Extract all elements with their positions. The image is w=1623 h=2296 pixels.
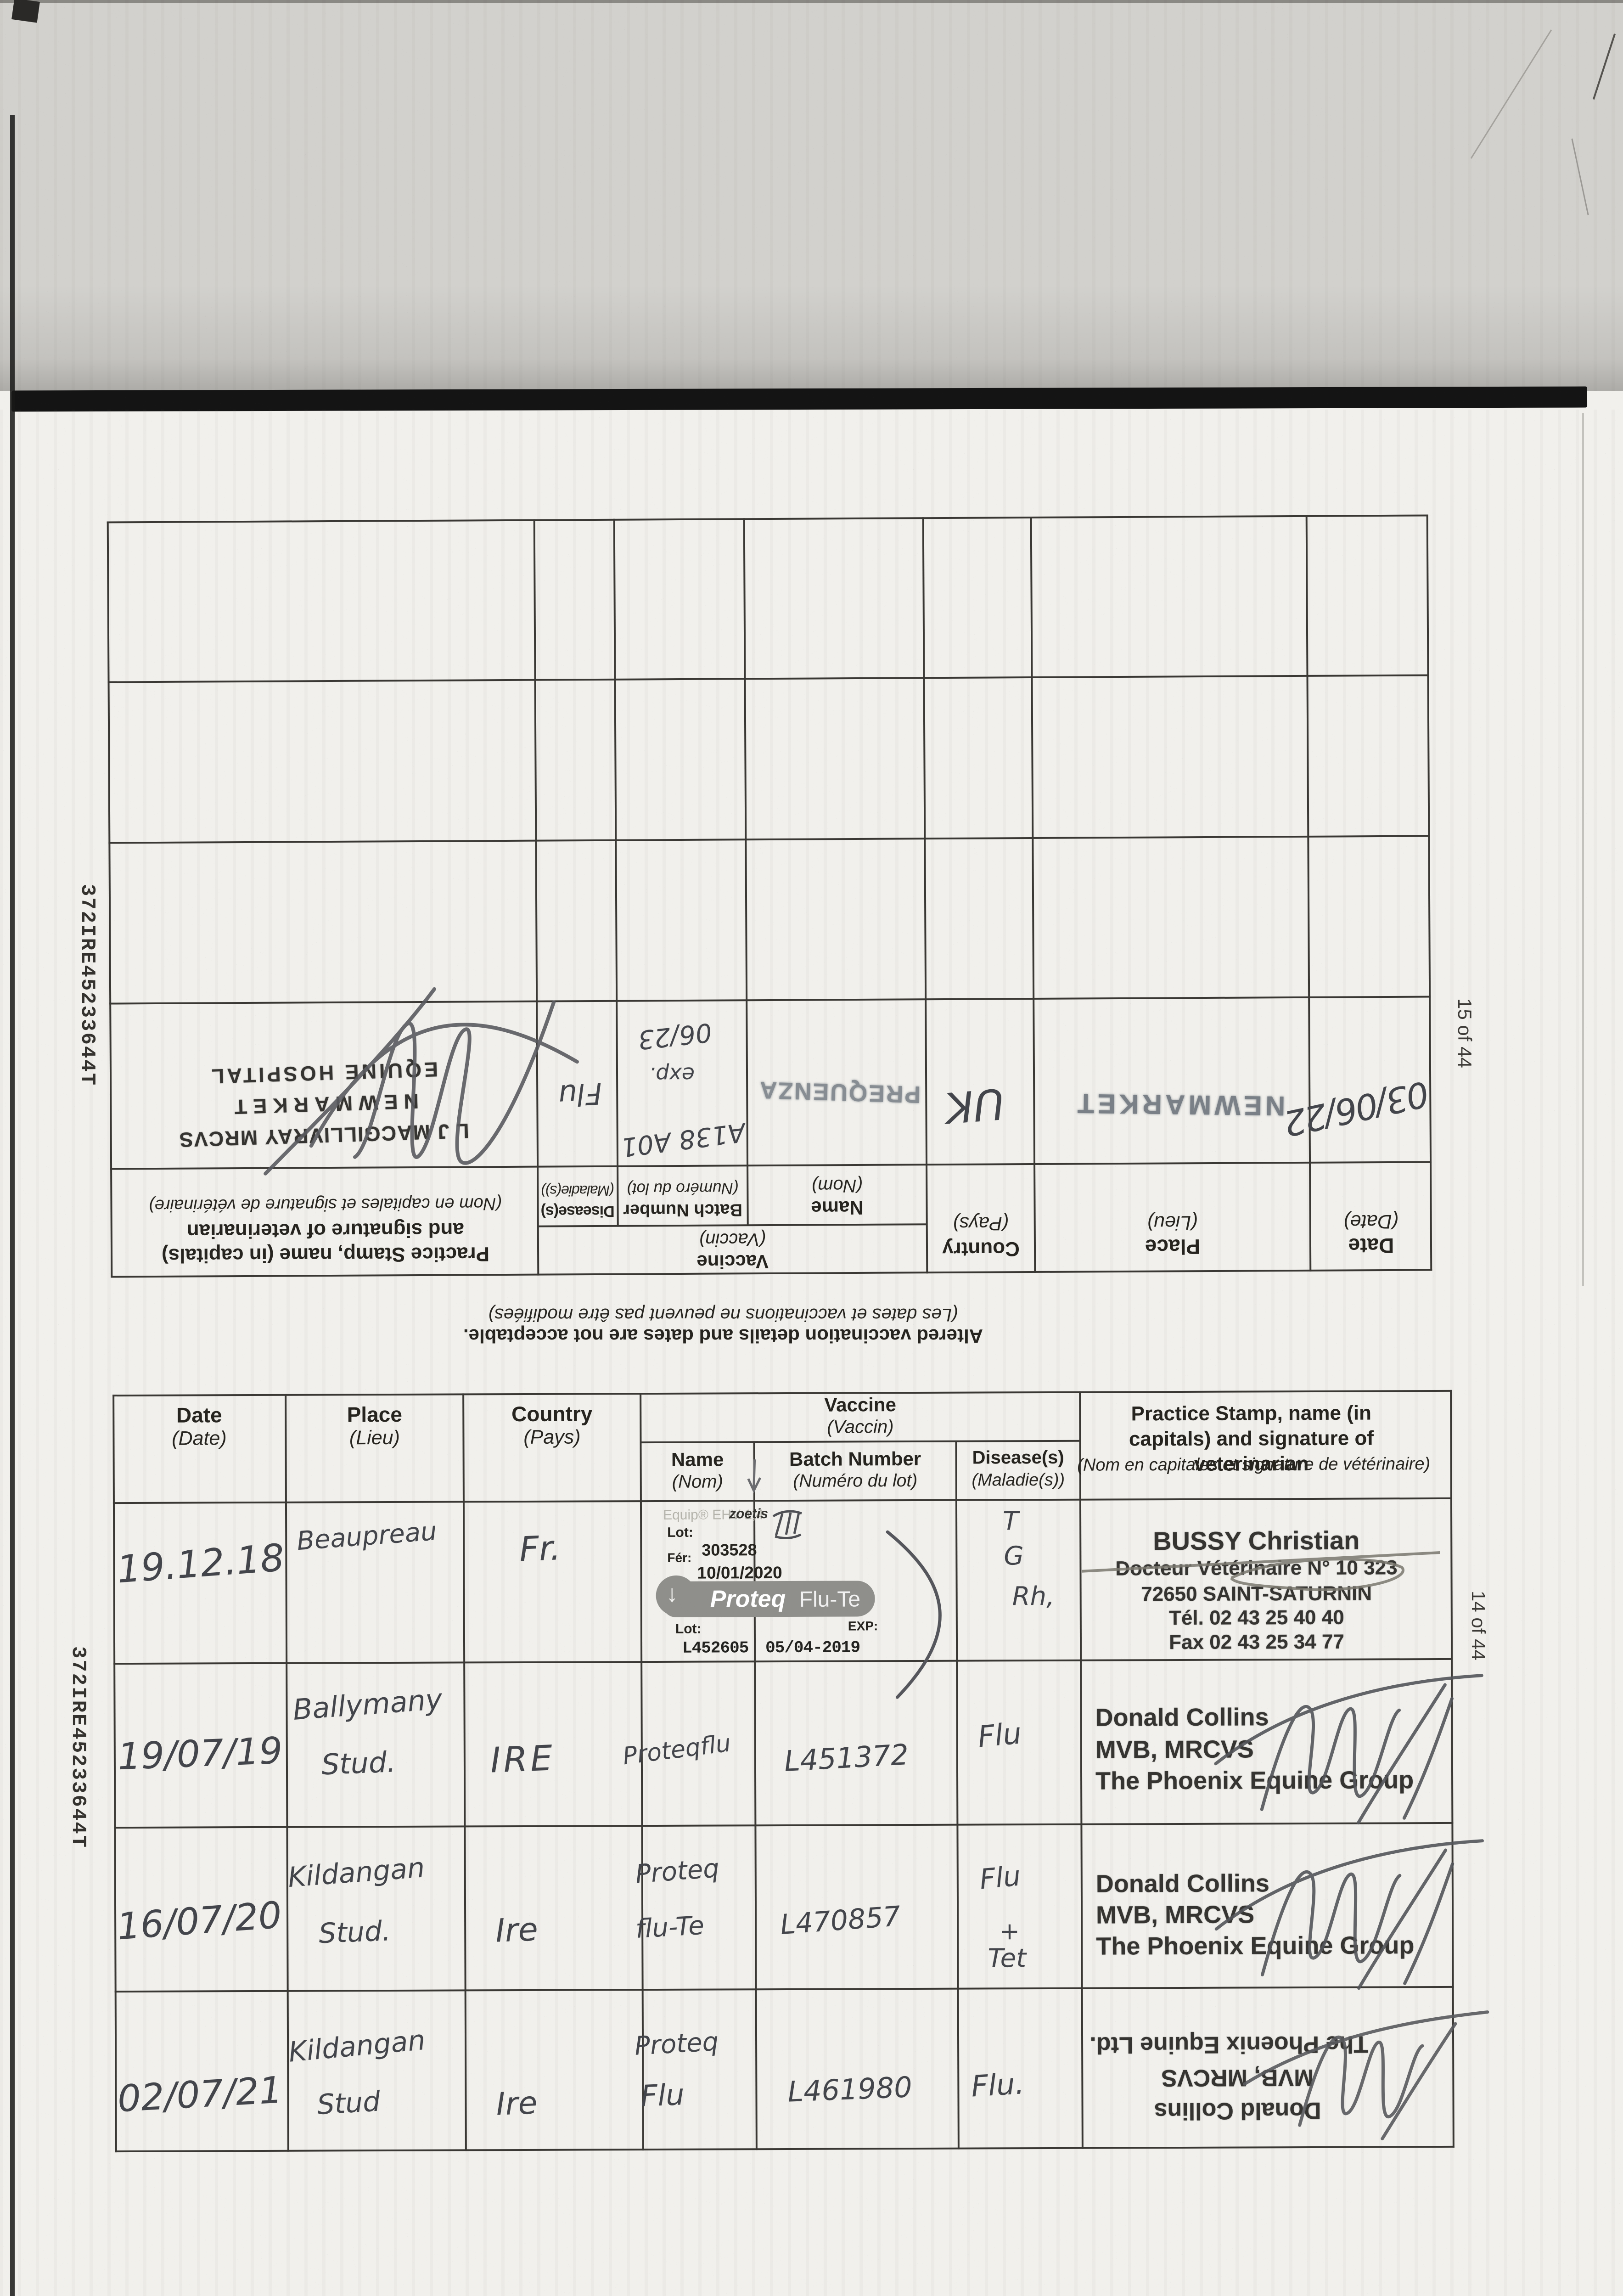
- row-disease: Flu: [978, 1860, 1022, 1896]
- veterinarian-signature: [237, 984, 587, 1201]
- row-batch: L451372: [783, 1738, 910, 1778]
- header-stamp: Practice Stamp, name (in capitals) and s…: [142, 1217, 510, 1267]
- header-country: Country: [927, 1237, 1035, 1261]
- veterinarian-signature: [1230, 2005, 1497, 2149]
- row-place: Stud: [316, 2086, 381, 2122]
- row-country: Fr.: [519, 1528, 562, 1569]
- scan-top-band-shade: [0, 285, 1623, 391]
- alteration-warning: Altered vaccination details and dates ar…: [406, 1304, 1040, 1347]
- header-batch-fr: (Numéro du lot): [754, 1471, 956, 1492]
- entry-vaccine-name-stamp: PREQUENZA: [758, 1076, 921, 1108]
- header-disease-fr: (Maladie(s)): [956, 1470, 1080, 1491]
- zoetis-logo: zoetis: [729, 1506, 768, 1522]
- header-disease: Disease(s): [956, 1447, 1080, 1469]
- entry-country: UK: [944, 1079, 1006, 1132]
- row-place: Stud.: [321, 1745, 397, 1781]
- row-vaccine-name: flu-Te: [635, 1911, 705, 1944]
- pencil-mark: [741, 1456, 769, 1506]
- down-arrow-icon: ↓: [666, 1580, 678, 1608]
- header-date-fr: (Date): [112, 1427, 286, 1450]
- row-disease: Flu: [977, 1716, 1023, 1754]
- row-disease: Tet: [988, 1943, 1026, 1973]
- entry-batch-exp-label: exp.: [649, 1063, 695, 1088]
- sticker-lot2-value: L452605: [682, 1638, 748, 1658]
- header-vaccine: Vaccine: [538, 1249, 927, 1273]
- top-edge-line: [0, 0, 1623, 3]
- row-date: 19/07/19: [117, 1729, 283, 1778]
- sticker-expiry-date: 10/01/2020: [697, 1563, 782, 1583]
- fold-line: [1582, 413, 1584, 1286]
- header-country-fr: (Pays): [927, 1212, 1035, 1235]
- row-place: Stud.: [318, 1915, 391, 1950]
- row-disease: T: [1003, 1506, 1018, 1536]
- document-code-top: 372IRE45233644T: [76, 884, 99, 1068]
- header-date-fr: (Date): [1310, 1210, 1432, 1232]
- header-vaccine: Vaccine: [640, 1393, 1080, 1417]
- row-disease: Rh,: [1012, 1581, 1055, 1611]
- sticker-product-bold: Proteq: [710, 1585, 786, 1613]
- sticker-product-light: Flu-Te: [799, 1587, 861, 1612]
- row-disease: +: [1000, 1918, 1020, 1945]
- header-country-fr: (Pays): [463, 1426, 640, 1449]
- row-batch: L461980: [787, 2070, 913, 2108]
- header-place-fr: (Lieu): [286, 1426, 463, 1449]
- header-batch: Batch Number: [754, 1448, 956, 1471]
- row-country: IRE: [489, 1737, 556, 1780]
- header-place: Place: [1035, 1234, 1310, 1260]
- header-name-fr: (Nom): [747, 1175, 927, 1196]
- row-vaccine-name: Proteq: [635, 1853, 720, 1889]
- sticker-lot2-label: Lot:: [675, 1621, 702, 1637]
- header-date: Date: [1310, 1233, 1432, 1258]
- scanned-passport-page: 372IRE45233644T 372IRE45233644T 15 of 44…: [0, 0, 1623, 2296]
- alteration-warning-fr: (Les dates et vaccinations ne peuvent pa…: [406, 1304, 1040, 1325]
- corner-mark: [11, 0, 40, 23]
- sticker-fer-label: Fér:: [667, 1551, 691, 1565]
- row-disease: Flu.: [970, 2067, 1025, 2104]
- header-date: Date: [112, 1402, 286, 1428]
- pen-scribble: [770, 1507, 812, 1539]
- header-batch: Batch Number: [618, 1199, 747, 1220]
- alteration-warning-en: Altered vaccination details and dates ar…: [406, 1325, 1040, 1347]
- vaccination-table-rotated: Date (Date) Place (Lieu) Country (Pays) …: [107, 514, 1432, 1277]
- header-vaccine-fr: (Vaccin): [538, 1228, 927, 1250]
- row-country: Ire: [495, 1910, 539, 1949]
- header-place-fr: (Lieu): [1035, 1210, 1310, 1234]
- pencil-strike: [1079, 1542, 1452, 1612]
- sticker-exp-label: EXP:: [848, 1619, 878, 1633]
- header-place: Place: [286, 1401, 463, 1427]
- header-stamp-fr: (Nom en capitales et signature de vétéri…: [1075, 1454, 1433, 1475]
- page-number-top: 15 of 44: [1454, 998, 1476, 1118]
- vaccination-table: Date (Date) Place (Lieu) Country (Pays) …: [112, 1390, 1455, 2152]
- practice-stamp-line: Fax 02 43 25 34 77: [1096, 1630, 1417, 1654]
- handwritten-parenthesis: [876, 1525, 977, 1709]
- entry-place-stamp: NEWMARKET: [1074, 1088, 1285, 1122]
- header-batch-fr: (Numéro du lot): [618, 1179, 747, 1198]
- sticker-lot-label: Lot:: [667, 1525, 693, 1541]
- row-vaccine-name: Flu: [640, 2078, 685, 2114]
- row-disease: G: [1004, 1541, 1024, 1571]
- sticker-lot-value: 303528: [702, 1540, 757, 1559]
- header-name: Name: [747, 1196, 927, 1219]
- header-name-fr: (Nom): [641, 1471, 754, 1492]
- veterinarian-signature: [1206, 1671, 1491, 1828]
- page-separator-bar: [11, 387, 1587, 412]
- header-country: Country: [463, 1401, 640, 1426]
- sticker-exp-value: 05/04-2019: [765, 1638, 860, 1657]
- page-edge-line: [10, 115, 15, 2296]
- header-vaccine-fr: (Vaccin): [640, 1416, 1080, 1438]
- header-name: Name: [641, 1448, 754, 1471]
- row-country: Ire: [495, 2085, 538, 2122]
- header-disease: Disease(s): [538, 1202, 618, 1221]
- row-vaccine-name: Proteq: [634, 2027, 719, 2061]
- document-code-bottom: 372IRE45233644T: [67, 1646, 90, 1830]
- veterinarian-signature: [1207, 1836, 1492, 1993]
